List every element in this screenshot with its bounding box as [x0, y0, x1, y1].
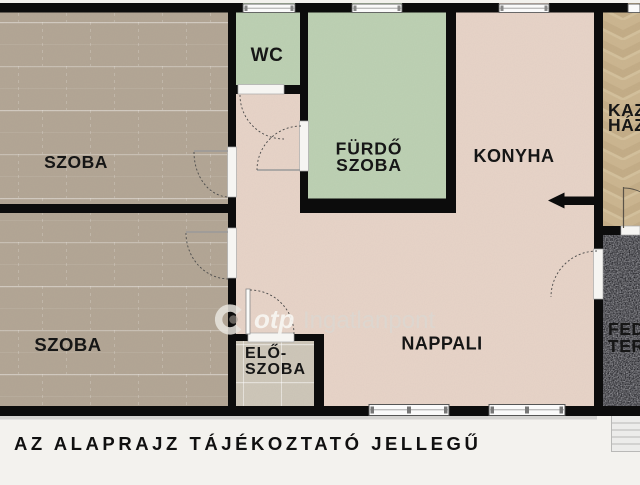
svg-text:Ingatlanpont: Ingatlanpont — [303, 307, 435, 334]
svg-text:WC: WC — [251, 45, 284, 66]
svg-text:KONYHA: KONYHA — [473, 146, 554, 166]
svg-text:SZOBA: SZOBA — [245, 361, 306, 378]
svg-text:AZ ALAPRAJZ TÁJÉKOZTATÓ JELLEG: AZ ALAPRAJZ TÁJÉKOZTATÓ JELLEGŰ — [14, 433, 481, 454]
svg-text:ELŐ-: ELŐ- — [245, 343, 287, 362]
svg-text:TERASZ: TERASZ — [608, 336, 640, 356]
svg-text:HÁZ: HÁZ — [608, 114, 640, 135]
svg-text:SZOBA: SZOBA — [44, 152, 108, 172]
svg-text:NAPPALI: NAPPALI — [401, 334, 482, 354]
svg-text:SZOBA: SZOBA — [34, 334, 101, 355]
svg-text:SZOBA: SZOBA — [336, 155, 402, 175]
svg-text:otp: otp — [254, 304, 295, 334]
